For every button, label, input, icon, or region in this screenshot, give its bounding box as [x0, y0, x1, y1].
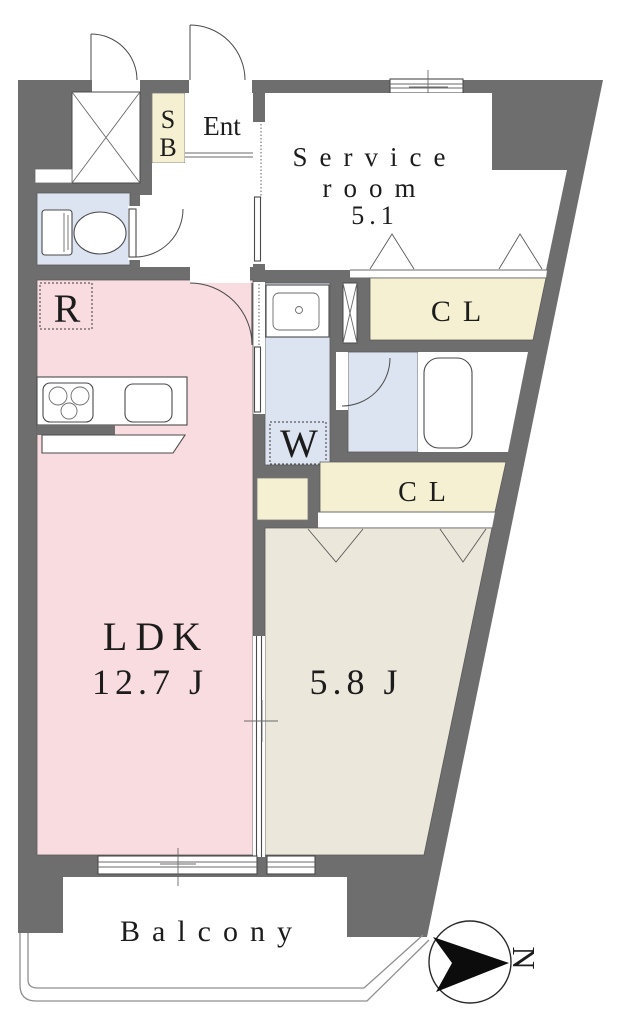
- washer-label: W: [280, 421, 318, 466]
- stove: [43, 383, 93, 422]
- western-room: 5.8 J: [265, 528, 492, 855]
- closet-upper-label: CL: [431, 295, 493, 328]
- refrigerator-label: R: [54, 286, 81, 331]
- entrance-door: [190, 25, 245, 80]
- vanity-fixture: [266, 285, 329, 337]
- toilet-room: [37, 193, 130, 265]
- service-room-label-1: Service: [293, 142, 458, 172]
- compass: N: [429, 921, 542, 1003]
- shoe-box-label-b: B: [159, 133, 176, 162]
- closet-lower: CL: [318, 462, 506, 528]
- washroom: W: [265, 283, 330, 466]
- ldk-area: 12.7 J: [92, 662, 208, 702]
- closet-small: [257, 478, 308, 520]
- pipe-space: [343, 283, 357, 343]
- western-room-window: [267, 856, 315, 874]
- ldk-room: R LDK 12.7 J: [37, 280, 253, 855]
- toilet-fixture: [42, 210, 126, 255]
- entrance-door-opening: [189, 79, 252, 93]
- kitchen-wall-stub: [37, 425, 115, 435]
- kitchen-sink: [125, 384, 172, 422]
- kitchen-front-panel: [42, 435, 185, 453]
- service-room-sliding-door: [253, 122, 265, 264]
- shoe-box-label-s: S: [161, 105, 175, 134]
- ldk-label: LDK: [103, 614, 209, 659]
- floor-plan-page: S B Ent Service room 5.1: [0, 0, 618, 1024]
- meter-box-door-opening: [92, 79, 140, 93]
- floor-plan: S B Ent Service room 5.1: [0, 0, 618, 1024]
- washroom-sliding-door: [253, 282, 265, 414]
- compass-north-label: N: [506, 946, 542, 969]
- closet-lower-label: CL: [398, 477, 458, 508]
- service-room-label-2: room: [323, 173, 428, 203]
- meter-box-door: [91, 34, 137, 80]
- entrance-label: Ent: [203, 111, 241, 141]
- kitchen-counter: [37, 377, 187, 453]
- balcony-label: Balcony: [120, 915, 304, 948]
- bathtub: [424, 358, 472, 448]
- service-room-area: 5.1: [351, 201, 399, 230]
- shoe-box: S B: [152, 93, 185, 163]
- western-room-area: 5.8 J: [309, 662, 402, 702]
- bathroom: [336, 352, 528, 452]
